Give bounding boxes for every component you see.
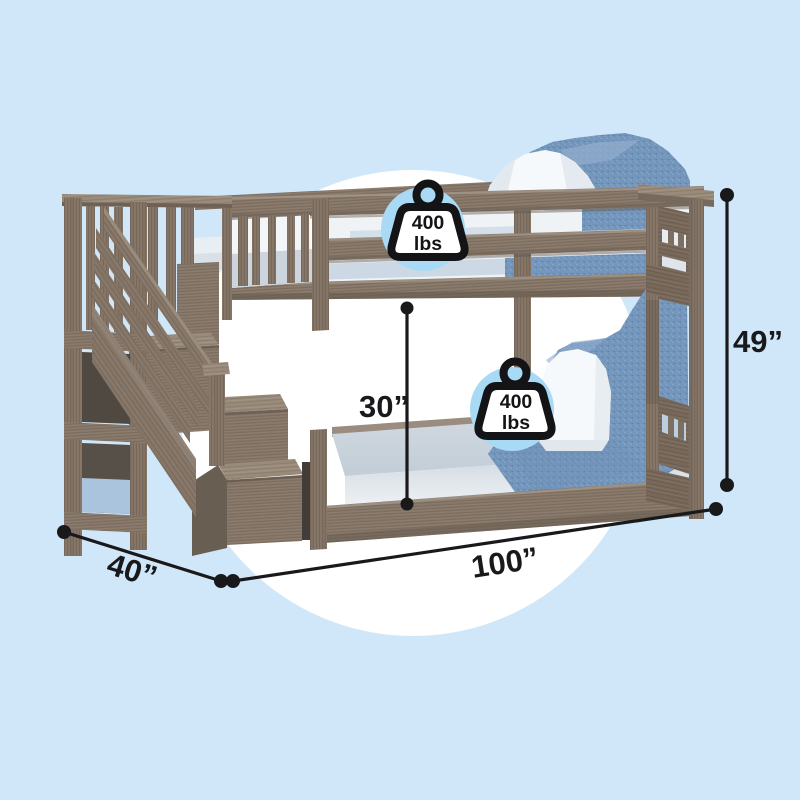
svg-text:30”: 30” <box>359 389 409 424</box>
svg-text:400: 400 <box>412 212 445 234</box>
svg-text:lbs: lbs <box>502 412 530 434</box>
svg-text:49”: 49” <box>733 324 783 359</box>
svg-text:400: 400 <box>500 391 533 413</box>
svg-text:lbs: lbs <box>414 233 442 255</box>
